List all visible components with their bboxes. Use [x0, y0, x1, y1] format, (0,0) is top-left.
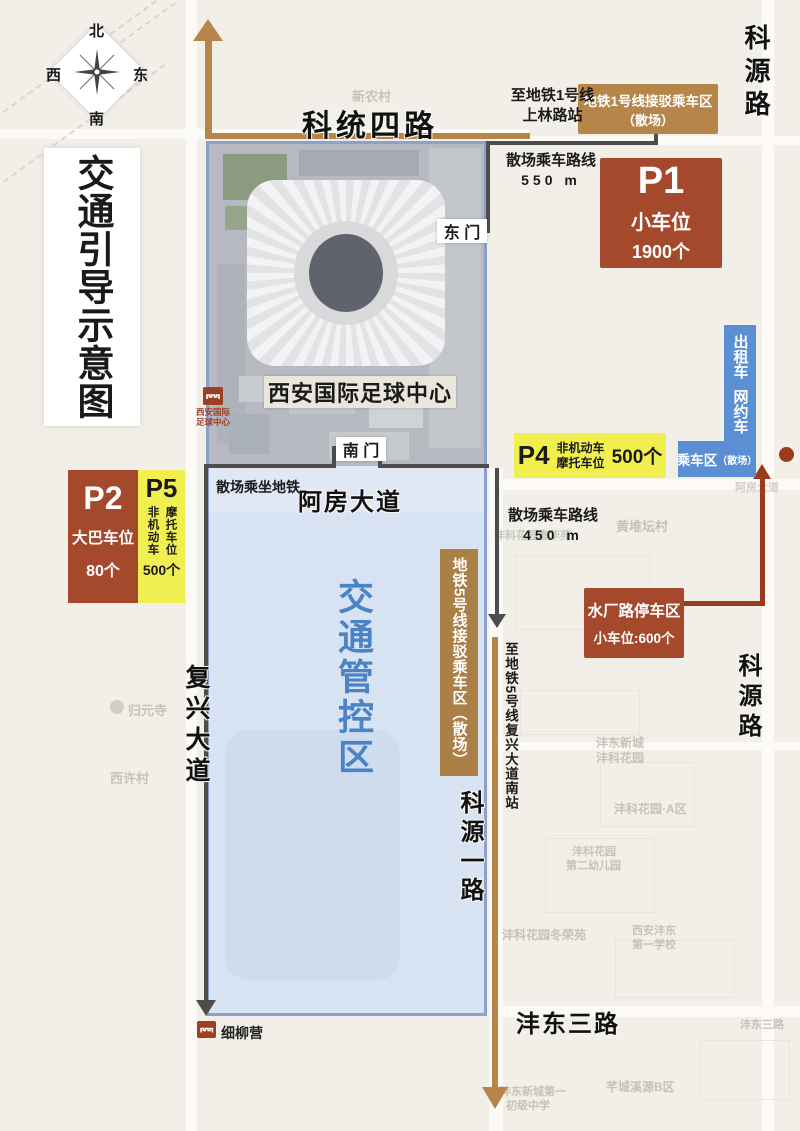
map-building-block	[600, 762, 695, 827]
control-zone-label: 交通管控区	[327, 578, 379, 778]
parking-p2-box: P2 大巴车位 80个	[68, 470, 138, 603]
map-building-block	[700, 1040, 790, 1100]
taxi-pickup-bottom: 乘车区（散场）	[678, 441, 756, 477]
map-label: 西许村	[110, 768, 149, 787]
walk-450-text: 散场乘车路线 450 m	[498, 505, 608, 546]
metro1-pickup-line2: （散场）	[622, 110, 674, 129]
p1-count: 1900个	[632, 238, 690, 264]
p2-type: 大巴车位	[72, 526, 134, 548]
south-gate-label: 南 门	[336, 437, 386, 461]
metro5-pickup-box: 地铁5号线接驳乘车区（散场）	[440, 549, 478, 776]
p1-id: P1	[638, 162, 684, 200]
p4-id: P4	[518, 440, 550, 471]
walk-550-line1: 散场乘车路线	[506, 150, 596, 171]
waterplant-detail: 小车位:600个	[593, 627, 674, 647]
road-label-fengdong3: 沣东三路	[516, 1004, 620, 1039]
walk-450-line1: 散场乘车路线	[508, 505, 598, 526]
map-label: 沣科花园冬荣苑	[502, 926, 586, 943]
compass-rose-icon	[69, 44, 125, 100]
p5-count: 500个	[143, 560, 180, 580]
compass-west-label: 西	[46, 64, 61, 85]
map-label: 第二幼儿园	[566, 857, 621, 873]
metro5-pickup-text: 地铁5号线接驳乘车区（散场）	[449, 557, 470, 767]
road-label-keyuan1: 科源一路	[452, 790, 487, 906]
walk-550-distance: 550 m	[521, 171, 581, 191]
stadium-station-line2: 足球中心	[196, 417, 230, 427]
xiliuying-station-label: 细柳营	[221, 1023, 263, 1043]
road-label-keyuan-mid: 科源路	[730, 653, 765, 743]
map-road-mid-east	[489, 742, 800, 750]
road-label-afang: 阿房大道	[298, 482, 402, 517]
route-subway-walk-arrowhead	[196, 1000, 216, 1016]
road-label-keyuan-top: 科源路	[738, 24, 775, 123]
p4-type: 非机动车 摩托车位	[557, 441, 605, 470]
taxi-v1: 出租车	[730, 334, 751, 379]
map-label: 第一学校	[632, 936, 676, 952]
east-gate-label: 东 门	[437, 219, 487, 243]
p4-type-line2: 摩托车位	[557, 456, 605, 470]
title-panel: 交通引导示意图	[44, 148, 140, 426]
p1-type: 小车位	[631, 206, 691, 235]
map-label: 沣东三路	[740, 1016, 784, 1032]
map-label: 归元寺	[128, 700, 167, 719]
road-label-ketong4: 科统四路	[302, 101, 438, 145]
zone-edge-left-seg	[204, 464, 334, 468]
route-450-arrowhead	[488, 614, 506, 628]
walk-450-distance: 450 m	[523, 526, 583, 546]
map-road-fuxing	[186, 0, 197, 1131]
route-waterplant-horizontal	[684, 601, 765, 606]
p5-col-left: 非机动车	[145, 506, 161, 556]
page-title: 交通引导示意图	[65, 154, 119, 420]
metro-station-icon	[197, 1021, 216, 1038]
compass-north-label: 北	[89, 20, 104, 41]
stadium-name-label: 西安国际足球中心	[264, 376, 456, 408]
compass-east-label: 东	[133, 64, 148, 85]
traffic-map-canvas: 新农村 归元寺 西许村 黄堆坛村 沣科花园春华苑 沣东新城 沣科花园 沣科花园·…	[0, 0, 800, 1131]
route-line1-vertical	[205, 40, 212, 137]
taxi-main: 乘车区	[677, 449, 718, 469]
to-line1-line2: 上林路站	[522, 106, 582, 126]
waterplant-name: 水厂路停车区	[587, 599, 680, 621]
parking-p1-box: P1 小车位 1900个	[600, 158, 722, 268]
route-waterplant-vertical	[760, 478, 765, 606]
road-label-fuxing: 复兴大道	[178, 664, 214, 788]
zone-edge-right-seg	[380, 464, 489, 468]
route-line1-arrowhead	[193, 19, 223, 41]
taxi-pickup-vertical: 出租车 网约车	[724, 325, 756, 443]
map-label: 初级中学	[506, 1097, 550, 1113]
route-550-horizontal	[486, 141, 658, 145]
map-label: 芊城溪源B区	[606, 1078, 675, 1095]
p5-id: P5	[146, 475, 178, 501]
subway-walk-text: 散场乘坐地铁	[216, 477, 300, 497]
map-label: 沣科花园·A区	[614, 800, 687, 817]
taxi-sub: （散场）	[717, 452, 757, 467]
route-line5-arrowhead	[482, 1087, 508, 1109]
to-line1-line1: 至地铁1号线	[511, 86, 594, 106]
compass: 北 东 南 西	[45, 20, 149, 124]
p4-type-line1: 非机动车	[557, 441, 605, 455]
map-building-block	[520, 690, 640, 735]
route-line5-vertical	[492, 637, 498, 1089]
p4-count: 500个	[612, 442, 663, 469]
temple-icon	[110, 700, 124, 714]
compass-south-label: 南	[89, 108, 104, 129]
metro-station-icon	[203, 387, 223, 405]
to-line1-text: 至地铁1号线 上林路站	[500, 86, 605, 125]
p5-columns: 非机动车 摩托车位	[145, 506, 179, 556]
stadium-station-label: 西安国际 足球中心	[195, 407, 231, 427]
stadium-station-line1: 西安国际	[196, 407, 230, 417]
p5-col-right: 摩托车位	[163, 506, 179, 556]
waterplant-parking-box: 水厂路停车区 小车位:600个	[584, 588, 684, 658]
map-label: 阿房大道	[735, 479, 779, 495]
p2-id: P2	[83, 482, 122, 514]
walk-550-text: 散场乘车路线 550 m	[496, 150, 606, 191]
taxi-v2: 网约车	[730, 389, 751, 434]
taxi-pickup-dot	[779, 447, 794, 462]
to-line5-text: 至地铁5号线复兴大道南站	[500, 642, 520, 810]
map-label: 黄堆坛村	[616, 516, 668, 535]
p2-count: 80个	[86, 557, 120, 581]
parking-p5-box: P5 非机动车 摩托车位 500个	[138, 470, 185, 603]
parking-p4-box: P4 非机动车 摩托车位 500个	[514, 433, 666, 478]
map-label: 沣科花园	[596, 749, 644, 766]
